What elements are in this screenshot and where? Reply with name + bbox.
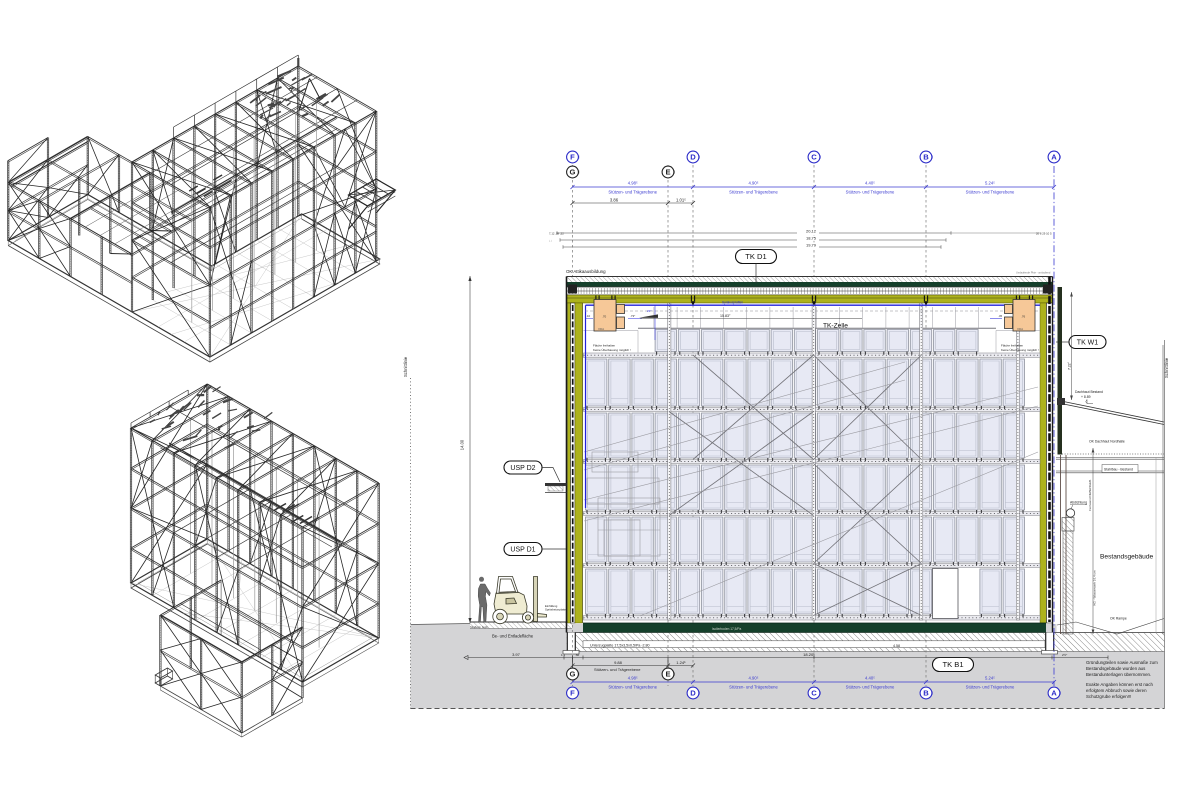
svg-text:4.58: 4.58 bbox=[893, 644, 900, 648]
svg-text:Exakte Angaben können erst nac: Exakte Angaben können erst nach bbox=[1086, 682, 1153, 687]
svg-text:14.00: 14.00 bbox=[460, 439, 465, 450]
svg-text:Stützen- und Trägerebene: Stützen- und Trägerebene bbox=[594, 667, 641, 672]
svg-text:Stützen- und Trägerebene: Stützen- und Trägerebene bbox=[846, 190, 895, 195]
svg-text:3.97: 3.97 bbox=[512, 652, 521, 657]
svg-text:.70: .70 bbox=[602, 314, 607, 318]
svg-text:KG - Wasserwerk 16,4 cm: KG - Wasserwerk 16,4 cm bbox=[1093, 570, 1097, 605]
svg-text:7,12 ,99 ,22: 7,12 ,99 ,22 bbox=[549, 232, 564, 236]
svg-text:Stützen- und Trägerebene: Stützen- und Trägerebene bbox=[729, 190, 778, 195]
svg-text:Stützen- und Trägerebene: Stützen- und Trägerebene bbox=[608, 685, 657, 690]
svg-text:TK B1: TK B1 bbox=[942, 660, 963, 669]
svg-text:TK W1: TK W1 bbox=[1077, 340, 1098, 347]
svg-text:Unterzugplatte 17,5x3,5x0,5/Pa: Unterzugplatte 17,5x3,5x0,5/Pa -2.80 bbox=[590, 644, 650, 648]
svg-text:18,75: 18,75 bbox=[806, 236, 817, 241]
svg-text:VDA: VDA bbox=[1017, 327, 1023, 331]
svg-text:4.98⁵: 4.98⁵ bbox=[628, 676, 638, 681]
svg-text:4.40⁵: 4.40⁵ bbox=[865, 181, 875, 186]
svg-text:Straßenk. Asph.: Straßenk. Asph. bbox=[470, 625, 489, 629]
svg-text:4.40⁵: 4.40⁵ bbox=[865, 676, 875, 681]
svg-text:Stützen- und Trägerebene: Stützen- und Trägerebene bbox=[608, 190, 657, 195]
svg-text:Bestandsgebäude: Bestandsgebäude bbox=[1100, 554, 1153, 561]
svg-text:1.24⁵: 1.24⁵ bbox=[676, 660, 686, 665]
svg-text:4.90⁵: 4.90⁵ bbox=[749, 181, 759, 186]
svg-text:B: B bbox=[923, 689, 929, 698]
svg-text:.73°: .73° bbox=[630, 314, 636, 318]
svg-text:Keine Überbauung möglich !: Keine Überbauung möglich ! bbox=[1001, 348, 1039, 352]
svg-text:VDA: VDA bbox=[598, 327, 604, 331]
svg-text:3.86: 3.86 bbox=[610, 198, 619, 203]
svg-text:USP D1: USP D1 bbox=[510, 547, 535, 554]
svg-text:.60: .60 bbox=[575, 653, 580, 657]
svg-text:2½°: 2½° bbox=[1062, 653, 1068, 657]
svg-text:Bestandunterlagen übernommen.: Bestandunterlagen übernommen. bbox=[1086, 672, 1151, 677]
svg-text:D: D bbox=[690, 689, 696, 698]
svg-text:C: C bbox=[811, 153, 817, 162]
svg-text:A: A bbox=[1051, 689, 1057, 698]
svg-text:18.20⁵: 18.20⁵ bbox=[803, 652, 815, 657]
svg-text:Stützen- und Trägerebene: Stützen- und Trägerebene bbox=[966, 685, 1015, 690]
svg-text:F: F bbox=[570, 153, 575, 162]
svg-text:C: C bbox=[811, 689, 817, 698]
svg-text:erfolgtem Abbruch sowie deren: erfolgtem Abbruch sowie deren bbox=[1086, 688, 1147, 693]
svg-text:Keine Überbauung möglich !: Keine Überbauung möglich ! bbox=[593, 348, 631, 352]
svg-text:20,12: 20,12 bbox=[806, 229, 817, 234]
svg-text:TK-Zelle: TK-Zelle bbox=[823, 323, 848, 330]
svg-text:.10: .10 bbox=[586, 314, 591, 318]
svg-text:Stützen- und Trägerebene: Stützen- und Trägerebene bbox=[846, 685, 895, 690]
svg-text:9.88: 9.88 bbox=[614, 660, 623, 665]
svg-text:Fernwand NEBENGEB.: Fernwand NEBENGEB. bbox=[1088, 479, 1092, 511]
svg-text:20 8 29 10 5: 20 8 29 10 5 bbox=[1036, 232, 1052, 236]
svg-text:Gründungteilen sowie Ausmaße z: Gründungteilen sowie Ausmaße zum bbox=[1086, 660, 1158, 665]
svg-text:TK D1: TK D1 bbox=[745, 252, 767, 261]
svg-text:5.24⁵: 5.24⁵ bbox=[985, 676, 995, 681]
svg-text:A: A bbox=[1051, 153, 1057, 162]
svg-text:USP D2: USP D2 bbox=[510, 465, 535, 472]
svg-text:Spritzbetonplatte: Spritzbetonplatte bbox=[545, 608, 566, 612]
svg-text:.76: .76 bbox=[1021, 314, 1026, 318]
svg-text:4.90⁵: 4.90⁵ bbox=[749, 676, 759, 681]
svg-text:F: F bbox=[570, 689, 575, 698]
svg-text:Abdichtung: Abdichtung bbox=[1070, 501, 1087, 505]
svg-text:Schnittlinie: Schnittlinie bbox=[1164, 357, 1169, 378]
svg-text:Schnittlinie: Schnittlinie bbox=[403, 356, 408, 377]
svg-text:Schutzgrube erfolgen!!!: Schutzgrube erfolgen!!! bbox=[1086, 694, 1131, 699]
svg-text:19,79: 19,79 bbox=[806, 243, 817, 248]
svg-text:4.98⁵: 4.98⁵ bbox=[628, 181, 638, 186]
svg-text:Dachhaut Bestand: Dachhaut Bestand bbox=[1075, 390, 1103, 394]
svg-text:Stützen- und Trägerebene: Stützen- und Trägerebene bbox=[966, 190, 1015, 195]
svg-text:Umlaufende Pkte - umlaufend: Umlaufende Pkte - umlaufend bbox=[1016, 271, 1051, 275]
svg-text:+ 8.89: + 8.89 bbox=[1081, 395, 1091, 399]
svg-text:G: G bbox=[570, 670, 576, 679]
svg-text:Isolierboden 17,5/Pa: Isolierboden 17,5/Pa bbox=[712, 627, 741, 631]
svg-text:23°: 23° bbox=[647, 309, 652, 313]
svg-text:5.24⁵: 5.24⁵ bbox=[985, 181, 995, 186]
svg-text:E: E bbox=[665, 670, 670, 679]
svg-text:15.83°: 15.83° bbox=[720, 314, 731, 318]
svg-text:G: G bbox=[570, 168, 576, 177]
svg-text:B: B bbox=[923, 153, 929, 162]
svg-text:1.01⁵: 1.01⁵ bbox=[676, 198, 686, 203]
svg-text:7.22°: 7.22° bbox=[1068, 361, 1072, 370]
svg-text:OK Dachhaut Nordhalle: OK Dachhaut Nordhalle bbox=[1089, 440, 1125, 444]
svg-text:Syrakusplatten: Syrakusplatten bbox=[722, 300, 743, 304]
svg-text:OK Attikaausbildung: OK Attikaausbildung bbox=[566, 269, 606, 274]
svg-text:D: D bbox=[690, 153, 696, 162]
svg-text:Stützen- und Trägerebene: Stützen- und Trägerebene bbox=[729, 685, 778, 690]
svg-text:OK Rampe: OK Rampe bbox=[1110, 617, 1127, 621]
svg-text:Bestandsgebäude wurden aus: Bestandsgebäude wurden aus bbox=[1086, 666, 1146, 671]
svg-text:Stahlbau - Bestand: Stahlbau - Bestand bbox=[1104, 467, 1133, 471]
svg-text:Be- und Entladefläche: Be- und Entladefläche bbox=[492, 634, 534, 639]
svg-text:E: E bbox=[665, 168, 670, 177]
svg-text:.45: .45 bbox=[998, 314, 1003, 318]
svg-text:1.1: 1.1 bbox=[561, 653, 566, 657]
